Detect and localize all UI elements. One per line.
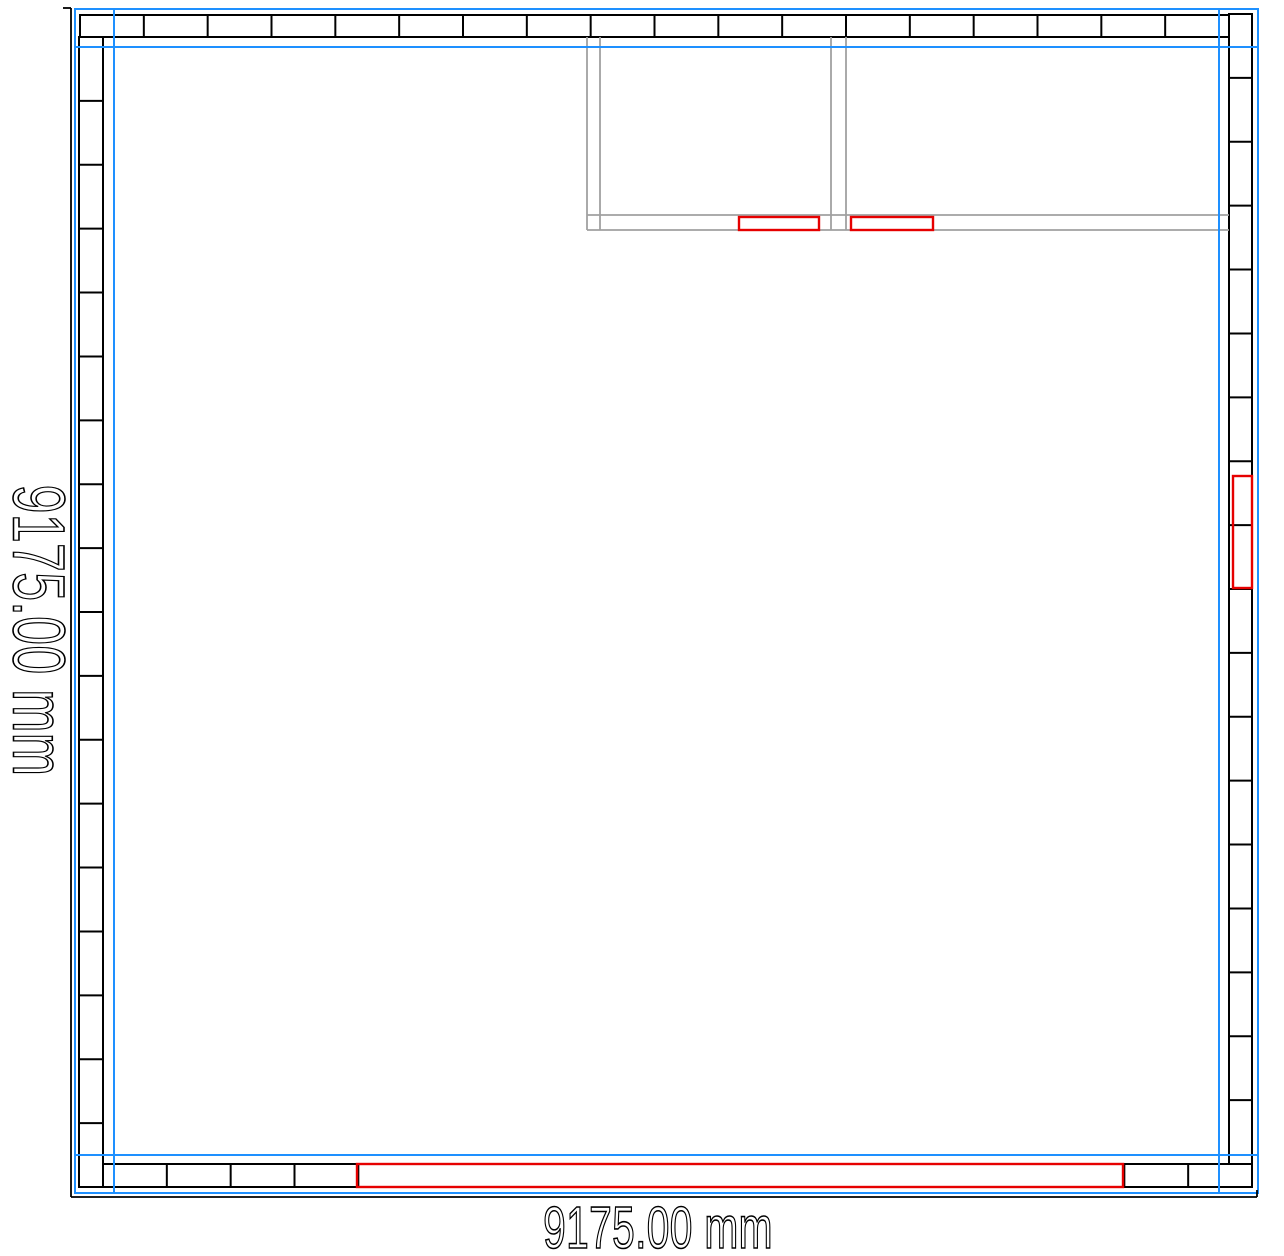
wall-top[interactable]	[80, 15, 1229, 37]
vertical-dimension-label: 9175.00 mm	[2, 347, 75, 915]
wall-band-outline[interactable]	[103, 1164, 1252, 1187]
partition-walls[interactable]	[587, 37, 1229, 230]
wall-bottom[interactable]	[103, 1164, 1252, 1187]
drawing-canvas[interactable]	[0, 0, 1284, 1256]
horizontal-dimension-label: 9175.00 mm	[382, 1199, 934, 1256]
wall-left[interactable]	[79, 37, 103, 1187]
dimension-lines	[63, 8, 1257, 1197]
guide-frame-outline[interactable]	[75, 9, 1258, 1193]
guide-frame[interactable]	[75, 9, 1258, 1193]
marker-room2-door[interactable]	[851, 217, 933, 230]
cad-viewport[interactable]: 9175.00 mm 9175.00 mm	[0, 0, 1284, 1256]
marker-room1-door[interactable]	[739, 217, 819, 230]
